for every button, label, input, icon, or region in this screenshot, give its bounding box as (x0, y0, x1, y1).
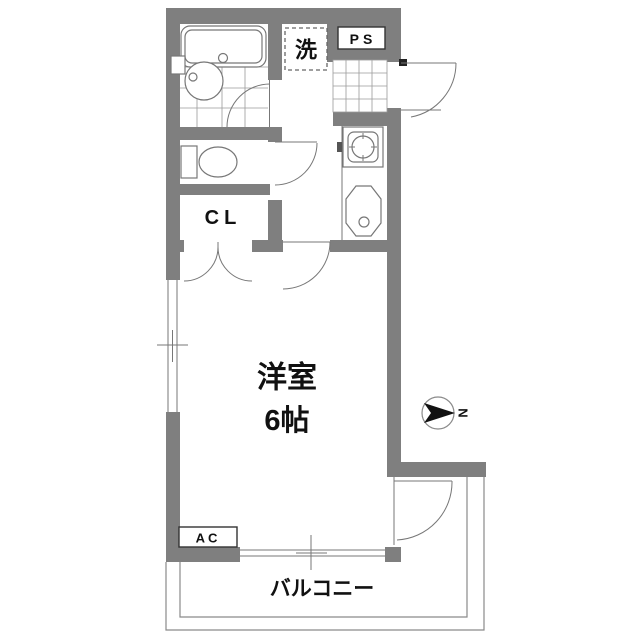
wall-top (166, 8, 401, 24)
window-bottom (240, 535, 385, 570)
bathroom (171, 26, 270, 127)
room-door-arc (283, 242, 330, 289)
wall-bath-hall-upper (268, 24, 282, 80)
toilet-bowl-icon (199, 147, 237, 177)
wall-toilet-cl (166, 184, 270, 195)
closet-door-arc-right (218, 247, 252, 281)
wall-bottom-right-stub (385, 547, 401, 562)
washbasin-icon (185, 62, 223, 100)
wall-room-top-b (252, 240, 283, 252)
entrance-door-arc (411, 63, 456, 117)
toilet-tank-icon (181, 146, 197, 178)
compass: N (422, 397, 471, 429)
kitchen (337, 126, 383, 240)
ps-label: PS (350, 31, 377, 47)
closet: CL (184, 207, 252, 281)
wall-right-main (387, 108, 401, 462)
closet-door-arc-left (184, 247, 218, 281)
window-left (157, 280, 188, 412)
toilet-door-arc (275, 143, 317, 185)
main-room-name: 洋室 (257, 361, 317, 395)
wall-left-lower (166, 412, 180, 562)
washer-space: 洗 (285, 28, 327, 70)
wall-bottom-left (166, 547, 240, 562)
ac-label: AC (196, 531, 221, 546)
wall-room-top-a (166, 240, 184, 252)
main-room-size: 6帖 (264, 404, 309, 437)
bathroom-door-arc (227, 84, 270, 127)
washer-label: 洗 (295, 38, 317, 63)
bath-tap-icon (171, 56, 185, 74)
kitchen-sink-icon (346, 186, 381, 236)
wall-jut-bottom-right (387, 462, 486, 477)
floorplan-canvas: CL PS 洗 (0, 0, 640, 640)
wall-cl-hall (268, 200, 282, 240)
pipe-space: PS (338, 27, 385, 49)
compass-north-arrow-icon (424, 403, 455, 423)
balcony-label: バルコニー (270, 578, 375, 601)
compass-north-label: N (456, 408, 471, 417)
floorplan-svg: CL PS 洗 (0, 0, 640, 640)
closet-label: CL (205, 207, 242, 229)
balcony-door-arc (397, 481, 452, 540)
toilet-room (181, 142, 317, 185)
stove-handle (337, 142, 342, 152)
bathtub-icon (181, 26, 266, 67)
wall-below-genkan (333, 112, 387, 126)
wall-room-top-c (330, 240, 401, 252)
main-room: 洋室 6帖 AC (157, 242, 385, 570)
wall-bath-toilet (166, 127, 282, 140)
